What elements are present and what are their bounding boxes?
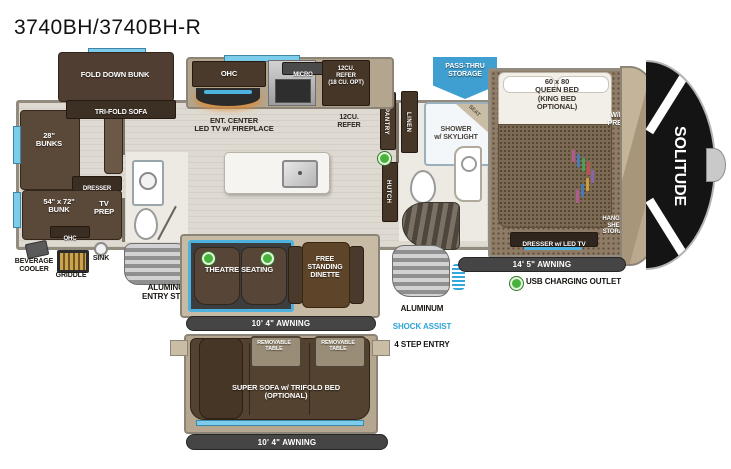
brand-logo: SOLITUDE — [672, 108, 688, 224]
bedroom-tv-strip-icon — [524, 247, 582, 250]
shock-assist-line2: SHOCK ASSIST — [368, 323, 476, 332]
cap-swoosh-top — [646, 62, 696, 135]
linen-cabinet: LINEN — [401, 91, 418, 153]
bunkroom-dresser: DRESSER — [72, 176, 122, 191]
usb-outlet-dot-hutch — [378, 152, 391, 165]
bath-toilet-icon — [410, 170, 436, 204]
fireplace-tv-icon — [196, 88, 260, 106]
bath-vanity-icon — [454, 146, 482, 202]
microwave: MICRO — [282, 62, 324, 75]
dinette-bench-right — [349, 246, 364, 304]
shock-assist-line1: ALUMINUM — [368, 305, 476, 314]
tri-fold-sofa-label: TRI-FOLD SOFA — [95, 109, 147, 116]
bedroom-dresser-tv: DRESSER w/ LED TV — [510, 232, 598, 247]
awning-living-label: 10' 4" AWNING — [252, 319, 311, 328]
usb-legend-label: USB CHARGING OUTLET — [526, 278, 666, 287]
exterior-sink-label: SINK — [84, 255, 118, 263]
bunkroom-wardrobe — [104, 110, 123, 174]
sofa-cushion-line-2 — [309, 343, 310, 415]
fold-down-bunk-label: FOLD DOWN BUNK — [60, 71, 170, 79]
bunk-28-label: 28" BUNKS — [22, 132, 76, 149]
wall-bunkroom-lower — [122, 198, 125, 242]
optional-counter-right — [372, 340, 390, 356]
window-left-1 — [13, 126, 21, 164]
bunk-28 — [20, 110, 80, 190]
floorplan-canvas: 3740BH/3740BH-R SEAT SHOWER w/ SKYLIGHT … — [0, 0, 731, 469]
kitchen-island — [224, 152, 330, 194]
led-tv-strip-icon — [204, 90, 252, 94]
theatre-seat-1 — [194, 247, 240, 305]
bunk-54x72-label: 54" x 72" BUNK — [30, 198, 88, 215]
exterior-sink-icon — [94, 242, 108, 256]
mid-bath-toilet-icon — [134, 208, 158, 240]
faucet-icon — [298, 171, 302, 175]
tri-fold-sofa: TRI-FOLD SOFA — [66, 100, 176, 119]
hutch-label: HUTCH — [385, 180, 391, 204]
awning-living: 10' 4" AWNING — [186, 316, 376, 331]
cap-swoosh-bottom — [646, 198, 696, 270]
island-sink-icon — [282, 160, 318, 188]
floorplan-title: 3740BH/3740BH-R — [14, 16, 274, 40]
window-left-2 — [13, 192, 21, 228]
mid-bath-shower-drain-icon — [139, 172, 157, 190]
vanity-sink-icon — [461, 156, 477, 172]
usb-outlet-dot-theatre-right — [261, 252, 274, 265]
removable-table-2-label: REMOVABLE TABLE — [314, 340, 362, 352]
kitchen-ohc-label: OHC — [221, 70, 237, 78]
griddle-label: GRIDDLE — [50, 272, 92, 280]
awning-optional: 10' 4" AWNING — [186, 434, 388, 450]
ent-center-label: ENT. CENTER LED TV w/ FIREPLACE — [172, 117, 296, 134]
shock-assist-steps-icon — [392, 245, 450, 297]
hitch-pin-icon — [706, 148, 726, 182]
awning-optional-label: 10' 4" AWNING — [258, 438, 317, 447]
refer-upper: 12CU. REFER (18 CU. OPT) — [322, 60, 370, 106]
usb-outlet-dot-theatre-left — [202, 252, 215, 265]
closet-clothes-icon — [570, 148, 604, 208]
queen-bed-label: 60 x 80 QUEEN BED (KING BED OPTIONAL) — [512, 78, 602, 112]
usb-legend-dot — [510, 277, 523, 290]
refer-label: 12CU. REFER — [328, 114, 370, 130]
kitchen-ohc: OHC — [192, 61, 266, 87]
super-sofa-label: SUPER SOFA w/ TRIFOLD BED (OPTIONAL) — [206, 384, 366, 401]
awning-door-side: 14' 5" AWNING — [458, 257, 626, 272]
awning-door-side-label: 14' 5" AWNING — [513, 260, 572, 269]
optional-slide-trim — [196, 420, 364, 426]
theatre-box — [188, 240, 294, 312]
dinette-label: FREE STANDING DINETTE — [302, 256, 348, 279]
shower-label: SHOWER w/ SKYLIGHT — [426, 126, 486, 142]
theatre-seating-label: THEATRE SEATING — [190, 266, 288, 274]
bunkroom-ohc: OHC — [50, 226, 90, 238]
removable-table-1-label: REMOVABLE TABLE — [250, 340, 298, 352]
linen-label: LINEN — [405, 112, 411, 133]
hutch-cabinet: HUTCH — [382, 162, 398, 222]
beverage-cooler-icon — [25, 240, 50, 259]
dinette-bench-left — [288, 246, 303, 304]
pantry-label: PANTRY — [383, 108, 389, 135]
optional-counter-left — [170, 340, 188, 356]
bunkroom-ohc-label: OHC — [63, 236, 76, 242]
oven-door-icon — [275, 79, 311, 103]
sofa-recliner-icon — [199, 338, 243, 419]
micro-label: MICRO — [293, 72, 313, 78]
refer-upper-label: 12CU. REFER (18 CU. OPT) — [323, 61, 369, 88]
tv-prep-label: TV PREP — [90, 200, 118, 217]
